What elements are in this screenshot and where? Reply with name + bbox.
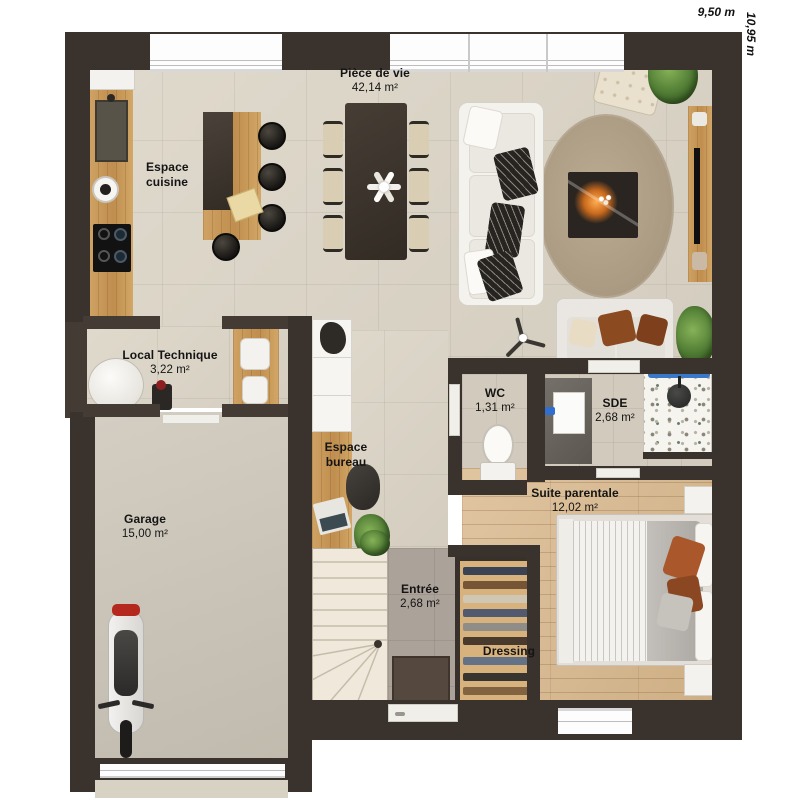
- doormat: [392, 656, 450, 704]
- dining-chair: [323, 121, 343, 158]
- toilet: [480, 424, 516, 484]
- room-label-local-technique: Local Technique 3,22 m²: [95, 348, 245, 377]
- room-name: Espace cuisine: [146, 160, 189, 189]
- window-bedroom: [558, 708, 632, 734]
- wall-living-south: [448, 358, 712, 374]
- clothes-row: [463, 687, 532, 695]
- wall-dressing-right: [527, 545, 540, 706]
- room-name: Dressing: [483, 644, 535, 658]
- window-mullion: [468, 34, 470, 72]
- room-area: 3,22 m²: [95, 363, 245, 377]
- plant: [676, 306, 716, 366]
- room-name: Suite parentale: [531, 486, 619, 500]
- room-label-espace-cuisine: Espace cuisine: [146, 160, 210, 190]
- petal-center: [379, 182, 389, 192]
- garage-door: [100, 764, 285, 778]
- wall-lt-top: [83, 316, 160, 329]
- room-name: Espace bureau: [325, 440, 368, 469]
- fan-hub: [519, 334, 527, 342]
- door-threshold-local-technique: [162, 414, 220, 424]
- kitchen-sink: [95, 100, 128, 162]
- dining-chair: [323, 215, 343, 252]
- room-area: 42,14 m²: [300, 81, 450, 95]
- front-door: [388, 704, 458, 722]
- bar-stool: [258, 122, 286, 150]
- room-label-suite-parentale: Suite parentale 12,02 m²: [495, 486, 655, 515]
- faucet-icon: [545, 407, 555, 415]
- kettle-lid: [100, 184, 111, 195]
- clothes-row: [463, 567, 532, 575]
- pump-valve: [156, 380, 166, 390]
- bar-stool: [258, 163, 286, 191]
- wall-left: [65, 32, 90, 322]
- room-area: 1,31 m²: [465, 401, 525, 415]
- room-area: 12,02 m²: [495, 501, 655, 515]
- room-name: WC: [485, 386, 505, 400]
- room-label-wc: WC 1,31 m²: [465, 386, 525, 415]
- ceiling-fan-icon: [511, 326, 535, 350]
- clothes-row: [463, 595, 532, 603]
- door-threshold-sde: [588, 360, 640, 373]
- dining-chair: [323, 168, 343, 205]
- room-label-dressing: Dressing: [470, 644, 548, 659]
- window-mullion: [546, 34, 548, 72]
- room-label-sde: SDE 2,68 m²: [580, 396, 650, 425]
- wall-lt-top: [222, 316, 288, 329]
- nightstand: [684, 664, 714, 696]
- burner-icon: [98, 228, 110, 240]
- coffee-table-fireplace: [568, 172, 638, 238]
- bed-sheet: [573, 521, 649, 661]
- dimension-width: 9,50 m: [635, 5, 735, 19]
- office-chair: [346, 464, 380, 510]
- laptop-screen: [319, 513, 347, 532]
- dining-chair: [409, 168, 429, 205]
- door-threshold-bedroom: [596, 468, 640, 478]
- shower-hose: [678, 376, 681, 388]
- room-label-garage: Garage 15,00 m²: [90, 512, 200, 541]
- bed-foot-frame: [559, 519, 573, 663]
- moto-tail: [112, 604, 140, 616]
- clothes-row: [463, 609, 532, 617]
- toilet-bowl: [482, 424, 514, 466]
- moto-front-wheel: [120, 720, 132, 758]
- wall-garage-left: [70, 412, 95, 792]
- wall-bottom: [312, 700, 742, 740]
- console-decor: [692, 252, 707, 270]
- burner-icon: [114, 250, 127, 263]
- door-handle-icon: [395, 712, 405, 716]
- staircase: [312, 548, 388, 706]
- wall-right: [712, 32, 742, 740]
- room-label-entree: Entrée 2,68 m²: [380, 582, 460, 611]
- room-area: 2,68 m²: [580, 411, 650, 425]
- clothes-row: [463, 623, 532, 631]
- loveseat-pillow: [568, 318, 598, 348]
- room-name: Local Technique: [122, 348, 217, 362]
- room-name: Entrée: [401, 582, 439, 596]
- room-name: Pièce de vie: [340, 66, 410, 80]
- window-top-left: [150, 34, 282, 72]
- wall-lt-bottom: [222, 404, 288, 417]
- clothes-row: [463, 581, 532, 589]
- driveway-strip: [95, 780, 288, 798]
- motorcycle: [100, 602, 152, 760]
- wc-door: [449, 384, 460, 436]
- bar-stool: [212, 233, 240, 261]
- room-name: SDE: [603, 396, 628, 410]
- moto-seat: [114, 630, 138, 696]
- dimension-height: 10,95 m: [744, 12, 758, 92]
- room-label-piece-de-vie: Pièce de vie 42,14 m²: [300, 66, 450, 95]
- nightstand: [684, 486, 714, 514]
- shelf-decor: [320, 322, 346, 354]
- plant: [360, 530, 390, 556]
- table-centerpiece: [366, 172, 402, 202]
- shower-curb: [643, 452, 712, 459]
- wall-garage-right: [288, 316, 312, 792]
- burner-icon: [98, 250, 110, 262]
- room-area: 15,00 m²: [90, 527, 200, 541]
- room-name: Garage: [124, 512, 166, 526]
- dining-chair: [409, 215, 429, 252]
- faucet-icon: [107, 94, 115, 102]
- burner-icon: [114, 228, 127, 241]
- tv-screen: [694, 148, 700, 244]
- utility-chair: [242, 376, 268, 404]
- toilet-tank: [480, 462, 516, 482]
- bed: [556, 514, 714, 666]
- room-label-espace-bureau: Espace bureau: [317, 440, 375, 470]
- clothes-row: [463, 673, 532, 681]
- dining-chair: [409, 121, 429, 158]
- wall-lt-bottom: [83, 404, 160, 417]
- wall-wc-sde-divider: [527, 358, 545, 482]
- room-area: 2,68 m²: [380, 597, 460, 611]
- console-decor: [692, 112, 707, 126]
- floor-plan: Pièce de vie 42,14 m² Espace cuisine Loc…: [0, 0, 800, 800]
